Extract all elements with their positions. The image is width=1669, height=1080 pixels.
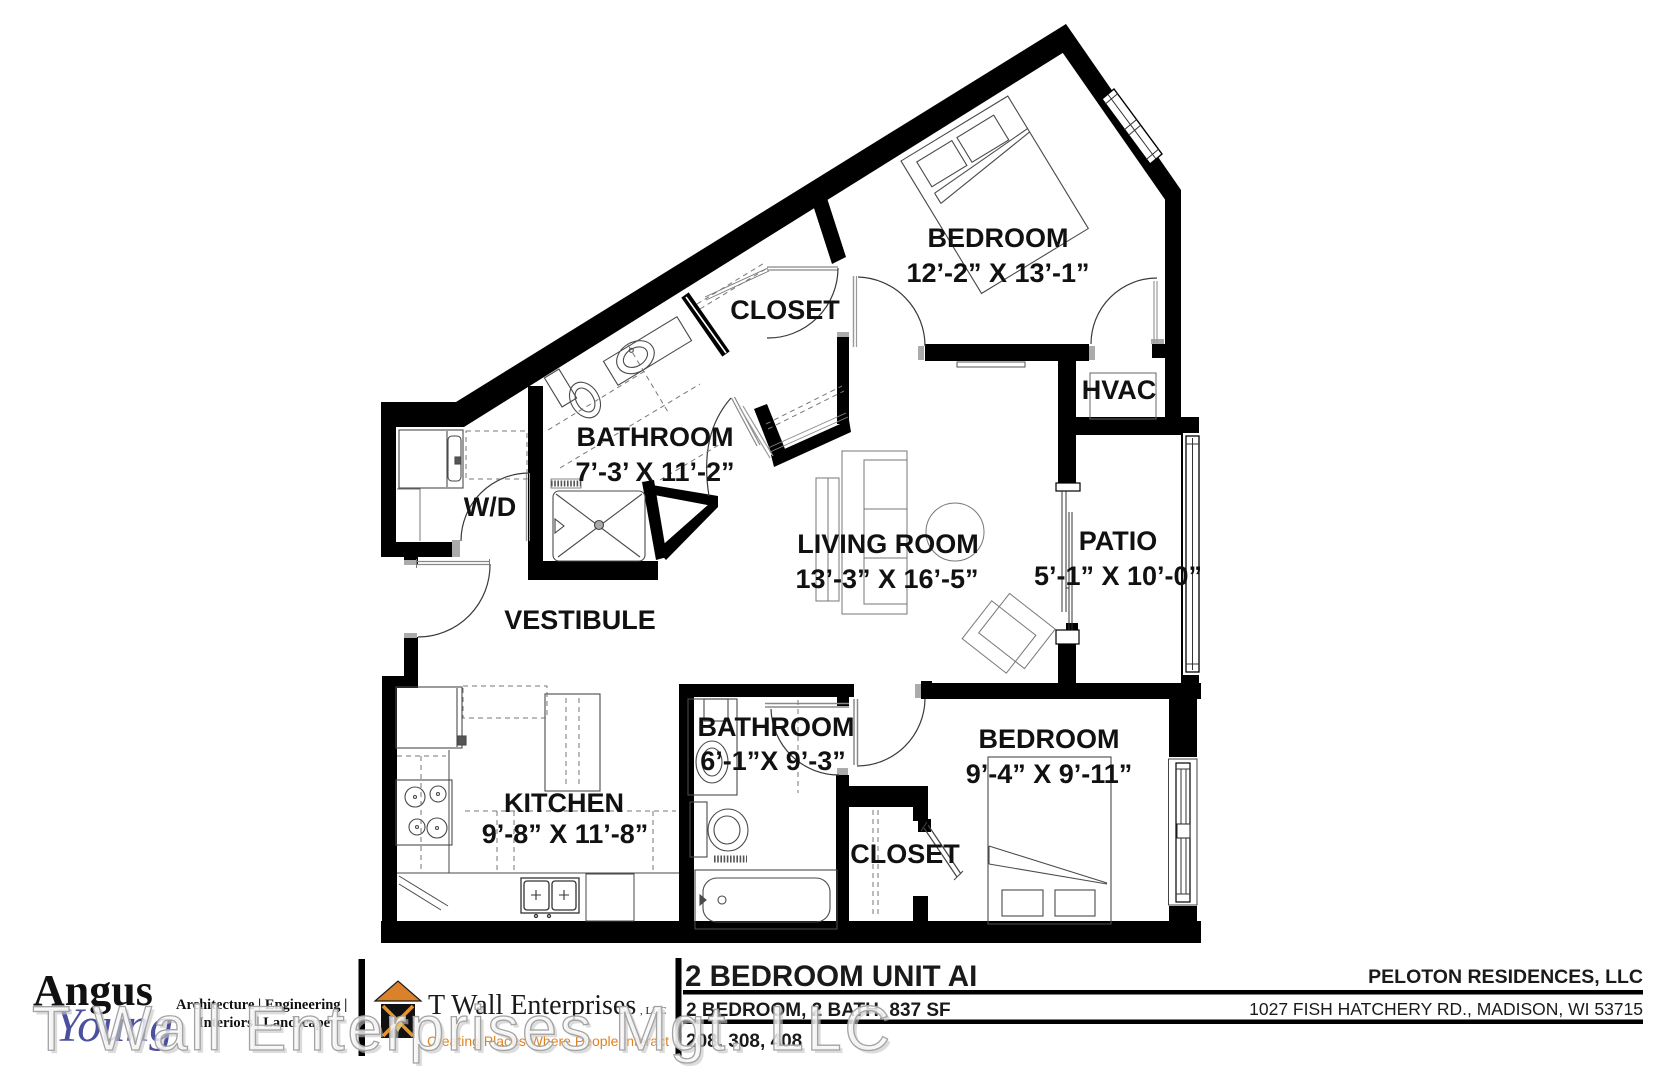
svg-text:BEDROOM: BEDROOM [928, 223, 1069, 253]
svg-text:W/D: W/D [464, 492, 516, 522]
svg-text:PATIO: PATIO [1079, 526, 1158, 556]
svg-text:KITCHEN: KITCHEN [504, 788, 624, 818]
svg-text:2 BEDROOM UNIT AI: 2 BEDROOM UNIT AI [685, 960, 977, 993]
svg-text:9’-8” X 11’-8”: 9’-8” X 11’-8” [482, 819, 649, 849]
svg-text:LIVING ROOM: LIVING ROOM [797, 529, 979, 559]
svg-text:BATHROOM: BATHROOM [577, 422, 734, 452]
svg-text:1027 FISH HATCHERY RD., MADISO: 1027 FISH HATCHERY RD., MADISON, WI 5371… [1249, 999, 1643, 1019]
svg-text:12’-2” X 13’-1”: 12’-2” X 13’-1” [906, 258, 1089, 288]
svg-text:T Wall Enterprises Mgt. LLC: T Wall Enterprises Mgt. LLC [32, 994, 890, 1064]
svg-text:13’-3” X 16’-5”: 13’-3” X 16’-5” [795, 564, 978, 594]
svg-text:7’-3’ X 11’-2”: 7’-3’ X 11’-2” [575, 457, 734, 487]
svg-text:5’-1” X 10’-0”: 5’-1” X 10’-0” [1034, 561, 1202, 591]
svg-text:BATHROOM: BATHROOM [698, 712, 855, 742]
svg-text:6’-1”X 9’-3”: 6’-1”X 9’-3” [700, 746, 846, 776]
svg-text:BEDROOM: BEDROOM [979, 724, 1120, 754]
svg-text:9’-4” X 9’-11”: 9’-4” X 9’-11” [966, 759, 1133, 789]
svg-text:HVAC: HVAC [1082, 375, 1157, 405]
svg-text:VESTIBULE: VESTIBULE [504, 605, 656, 635]
svg-text:CLOSET: CLOSET [730, 295, 840, 325]
svg-text:PELOTON RESIDENCES, LLC: PELOTON RESIDENCES, LLC [1368, 966, 1643, 988]
svg-text:CLOSET: CLOSET [850, 839, 960, 869]
